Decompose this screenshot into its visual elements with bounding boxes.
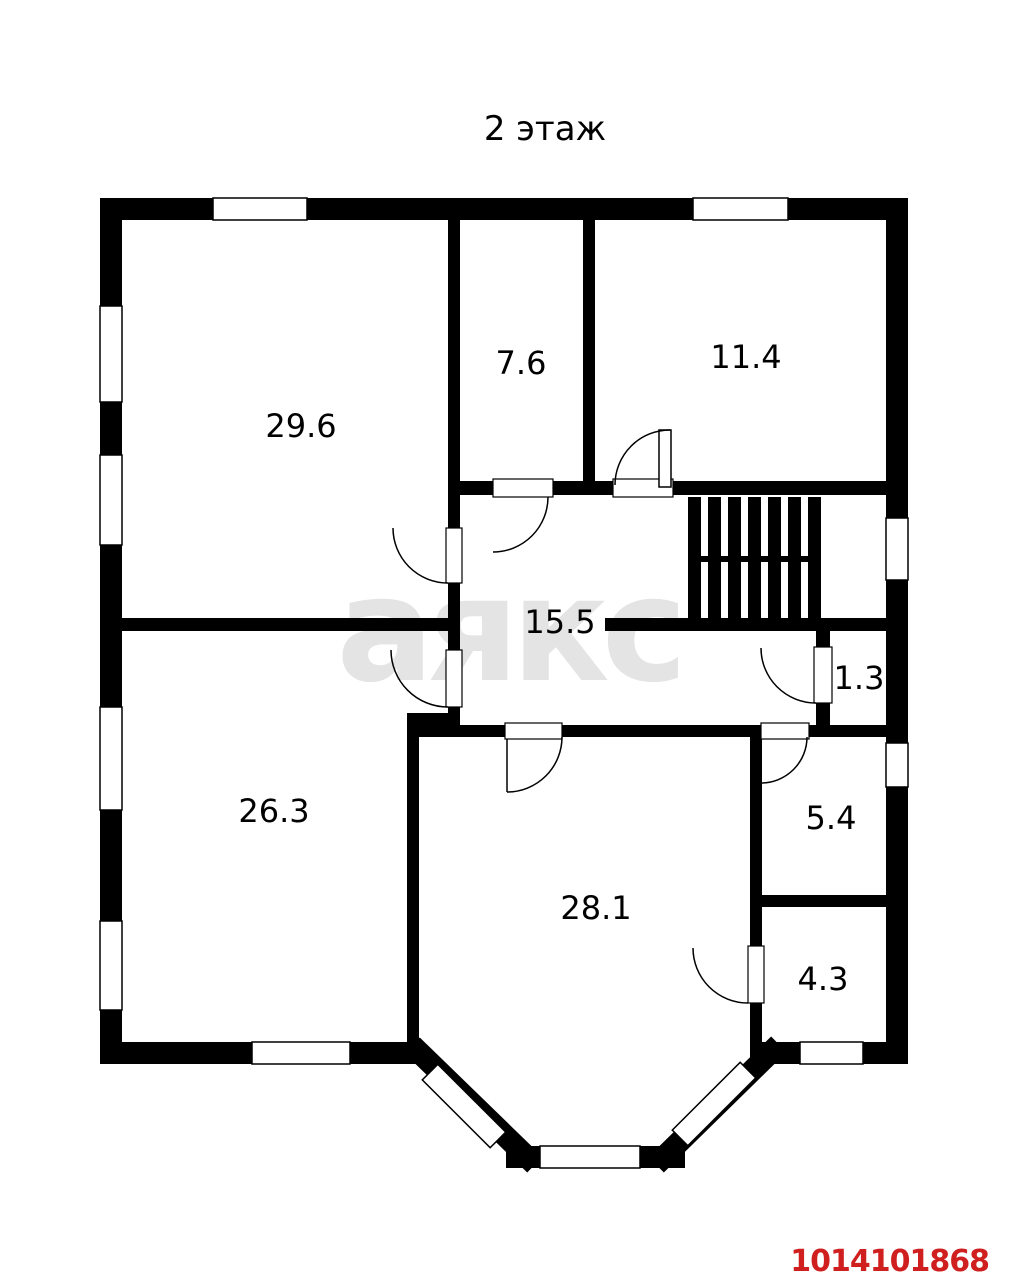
wall-segment (407, 725, 419, 1064)
stair-tread (748, 562, 761, 618)
wall-segment (605, 618, 886, 631)
wall-segment (448, 481, 493, 495)
stair-tread (708, 562, 721, 618)
wall-segment (100, 618, 460, 631)
room-area-label: 4.3 (798, 960, 849, 998)
wall-segment (762, 895, 886, 907)
door-opening (505, 723, 562, 739)
stair-tread (728, 562, 741, 618)
room-area-label: 7.6 (496, 344, 547, 382)
room-area-label: 29.6 (265, 407, 336, 445)
page-title: 2 этаж (484, 109, 606, 149)
wall-segment (562, 725, 761, 737)
stair-tread (808, 497, 821, 556)
window (100, 306, 122, 402)
floor-plan: аякс 2 этаж (0, 0, 1015, 1280)
room-area-label: 5.4 (806, 799, 857, 837)
stair-tread (788, 497, 801, 556)
wall-segment (750, 725, 762, 948)
wall-segment (448, 583, 460, 650)
room-area-label: 26.3 (238, 792, 309, 830)
wall-segment (816, 631, 830, 647)
window (693, 198, 788, 220)
door-opening (748, 946, 764, 1003)
door-opening (446, 528, 462, 583)
stair-landing-divider (688, 556, 821, 562)
stair-tread (708, 497, 721, 556)
window (800, 1042, 863, 1064)
window (540, 1146, 640, 1168)
stair-tread (748, 497, 761, 556)
window (100, 707, 122, 810)
stair-tread (688, 562, 701, 618)
room-area-label: 1.3 (834, 659, 885, 697)
wall-segment (553, 481, 613, 495)
wall-segment (750, 1003, 762, 1064)
window (100, 455, 122, 545)
window (886, 518, 908, 580)
door-opening (761, 723, 809, 739)
wall-segment (673, 481, 886, 495)
window (252, 1042, 350, 1064)
wall-segment (886, 198, 908, 1064)
listing-id: 1014101868 (790, 1244, 989, 1279)
window (886, 743, 908, 787)
stair-tread (768, 562, 781, 618)
wall-segment (583, 220, 595, 495)
room-area-label: 15.5 (524, 603, 595, 641)
window (100, 921, 122, 1010)
stair-tread (688, 497, 701, 556)
wall-segment (407, 725, 505, 737)
window (213, 198, 307, 220)
door-opening (493, 479, 553, 497)
stair-tread (808, 562, 821, 618)
room-area-label: 11.4 (710, 338, 781, 376)
door-opening (814, 647, 832, 703)
stair-tread (788, 562, 801, 618)
stair-tread (728, 497, 741, 556)
door-leaf (659, 430, 671, 487)
wall-segment (809, 725, 886, 737)
room-area-label: 28.1 (560, 889, 631, 927)
stair-tread (768, 497, 781, 556)
door-opening (446, 650, 462, 707)
